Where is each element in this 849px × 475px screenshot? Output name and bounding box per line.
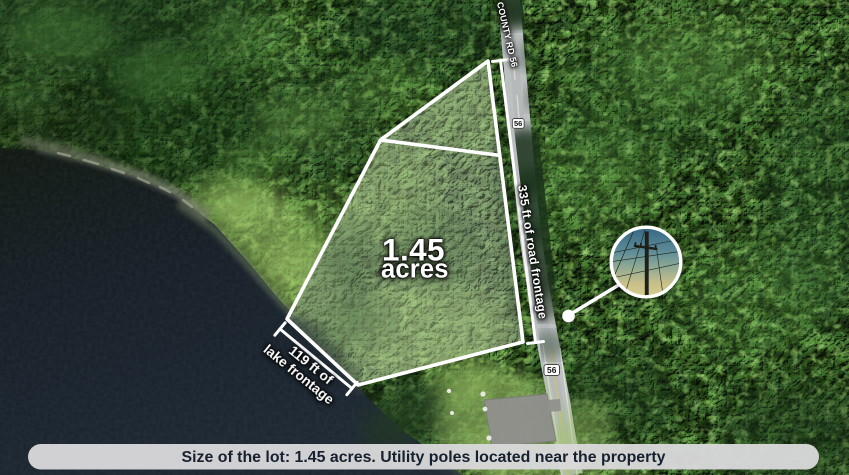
svg-text:acres: acres [381,256,449,284]
svg-text:56: 56 [547,365,557,375]
svg-text:56: 56 [514,119,522,128]
svg-text:Size of the lot: 1.45 acres. U: Size of the lot: 1.45 acres. Utility pol… [182,449,666,466]
